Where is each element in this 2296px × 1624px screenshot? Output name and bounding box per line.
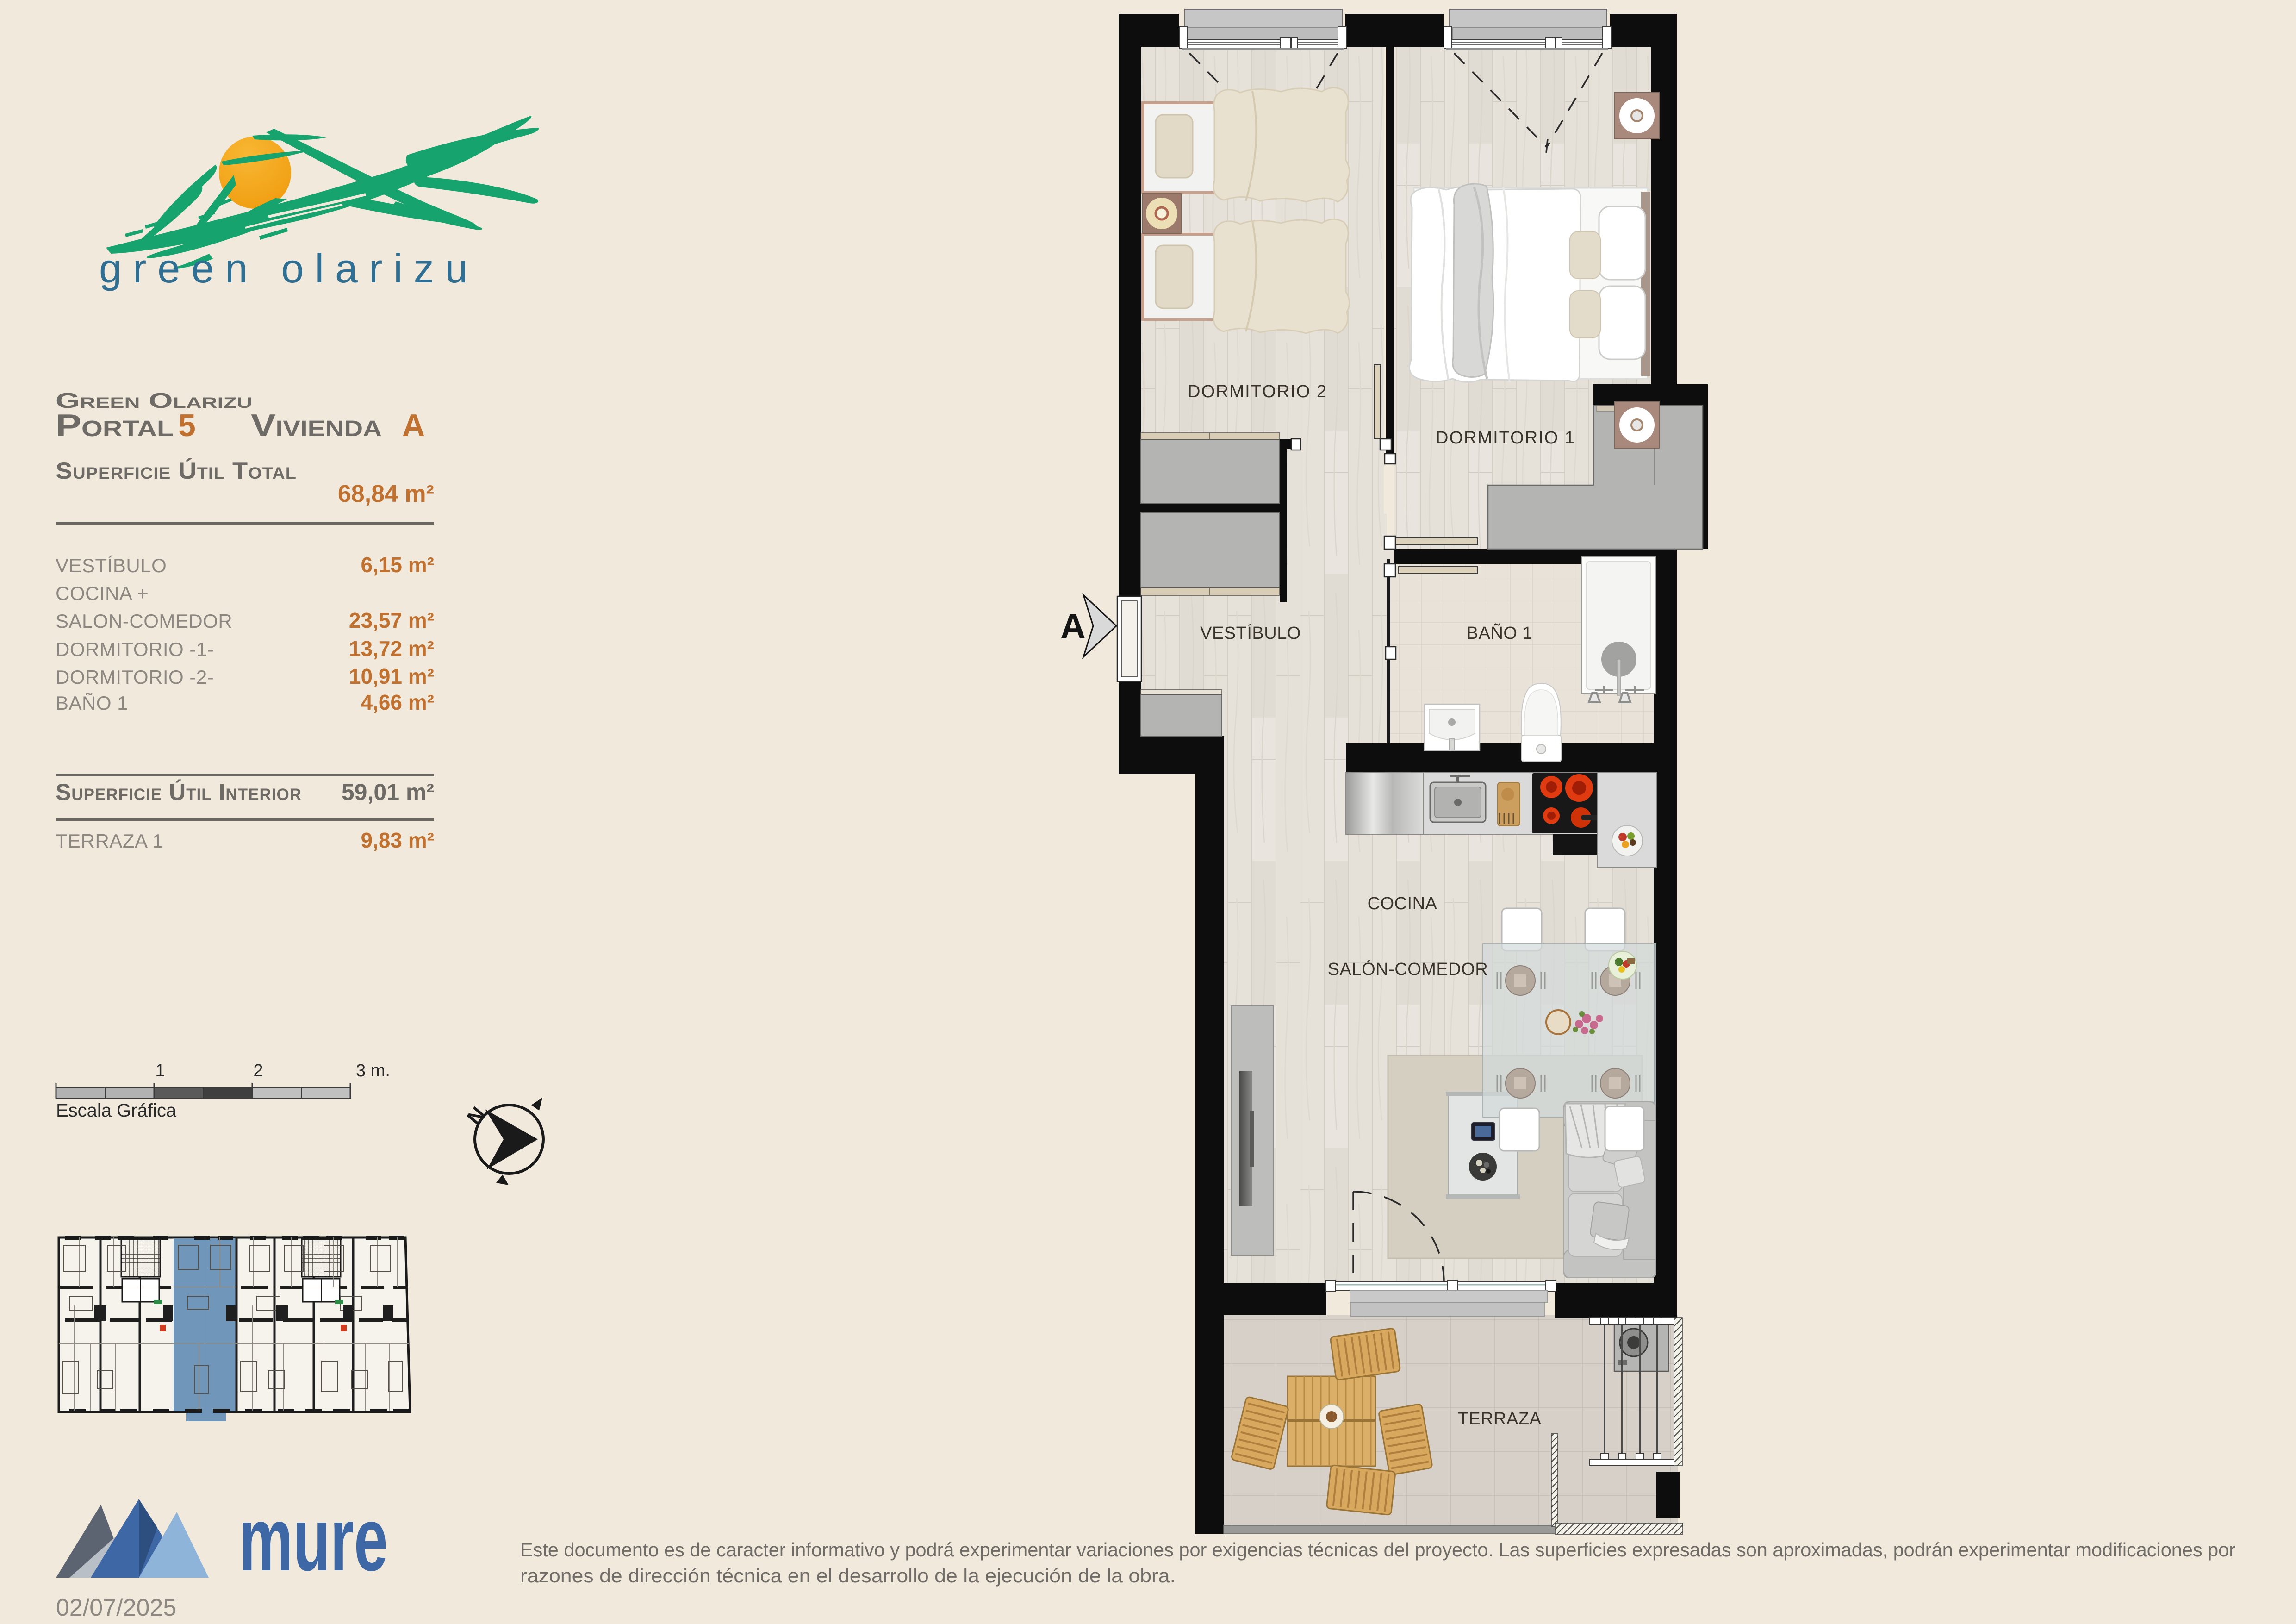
- svg-text:4,66 m²: 4,66 m²: [361, 690, 434, 714]
- svg-text:Portal: Portal: [56, 408, 174, 443]
- svg-text:DORMITORIO 1: DORMITORIO 1: [1436, 428, 1575, 448]
- svg-text:SALON-COMEDOR: SALON-COMEDOR: [56, 610, 232, 632]
- svg-text:SALÓN-COMEDOR: SALÓN-COMEDOR: [1328, 959, 1488, 979]
- svg-text:68,84 m²: 68,84 m²: [338, 481, 434, 507]
- svg-text:COCINA: COCINA: [1368, 894, 1437, 913]
- svg-text:1: 1: [155, 1061, 165, 1081]
- svg-text:DORMITORIO -1-: DORMITORIO -1-: [56, 638, 214, 660]
- svg-text:02/07/2025: 02/07/2025: [56, 1594, 176, 1621]
- svg-text:6,15 m²: 6,15 m²: [361, 553, 434, 577]
- svg-text:9,83 m²: 9,83 m²: [361, 828, 434, 852]
- svg-text:mure: mure: [239, 1489, 388, 1590]
- svg-text:59,01 m²: 59,01 m²: [342, 779, 434, 805]
- svg-text:Superficie Útil Total: Superficie Útil Total: [56, 458, 297, 484]
- svg-text:A: A: [1060, 607, 1086, 646]
- svg-text:VESTÍBULO: VESTÍBULO: [56, 555, 167, 576]
- svg-text:10,91 m²: 10,91 m²: [349, 664, 434, 688]
- svg-text:VESTÍBULO: VESTÍBULO: [1200, 623, 1301, 643]
- svg-text:13,72 m²: 13,72 m²: [349, 637, 434, 661]
- svg-text:TERRAZA: TERRAZA: [1458, 1409, 1542, 1429]
- svg-text:5: 5: [178, 408, 196, 443]
- svg-text:Superficie Útil Interior: Superficie Útil Interior: [56, 779, 302, 805]
- svg-text:2: 2: [253, 1061, 263, 1081]
- svg-text:COCINA +: COCINA +: [56, 582, 149, 604]
- svg-text:3 m.: 3 m.: [356, 1061, 390, 1081]
- svg-text:green olarizu: green olarizu: [99, 245, 479, 291]
- svg-text:BAÑO 1: BAÑO 1: [56, 692, 128, 714]
- svg-text:razones de dirección técnica e: razones de dirección técnica en el desar…: [520, 1565, 1176, 1587]
- svg-text:DORMITORIO -2-: DORMITORIO -2-: [56, 666, 214, 688]
- svg-text:DORMITORIO 2: DORMITORIO 2: [1188, 382, 1327, 401]
- svg-text:23,57 m²: 23,57 m²: [349, 608, 434, 632]
- svg-text:TERRAZA 1: TERRAZA 1: [56, 830, 163, 852]
- svg-text:BAÑO 1: BAÑO 1: [1467, 623, 1532, 643]
- svg-text:Escala Gráfica: Escala Gráfica: [56, 1100, 177, 1121]
- svg-text:Vivienda: Vivienda: [251, 408, 382, 443]
- svg-text:Este documento es de caracter: Este documento es de caracter informativ…: [520, 1539, 2235, 1561]
- svg-text:A: A: [402, 408, 425, 443]
